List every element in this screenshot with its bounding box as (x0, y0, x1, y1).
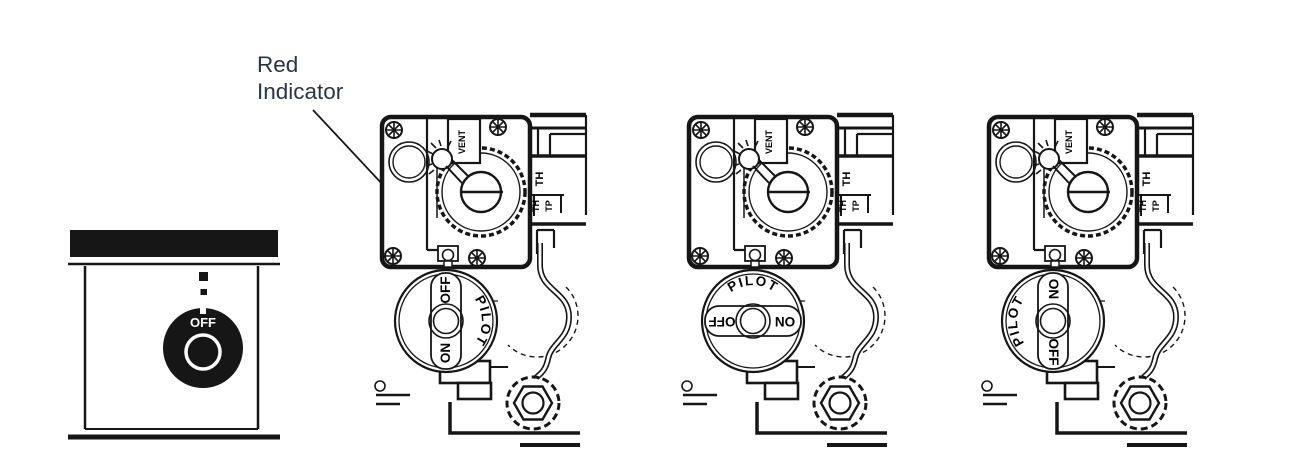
valve-figure-on (982, 115, 1193, 445)
knob-position-off (395, 270, 497, 372)
front-panel-figure: OFF (68, 230, 280, 437)
diagram-canvas: VENT TH TH T (0, 0, 1306, 451)
valve-figure-off (375, 115, 586, 445)
valve-figure-pilot (682, 115, 893, 445)
callout-text-line1: Red (257, 52, 298, 77)
panel-knob-off-label: OFF (190, 315, 216, 330)
index-mark-2 (201, 289, 208, 295)
panel-knob: OFF (163, 304, 243, 388)
knob-pointer-tick (200, 304, 206, 314)
knob-position-on (1002, 270, 1104, 372)
knob-position-pilot (702, 270, 804, 372)
callout-text-line2: Indicator (257, 79, 344, 104)
panel-top-bar (70, 230, 278, 257)
manual-illustration: VENT TH TH T (0, 0, 1306, 451)
index-mark-1 (199, 272, 208, 281)
